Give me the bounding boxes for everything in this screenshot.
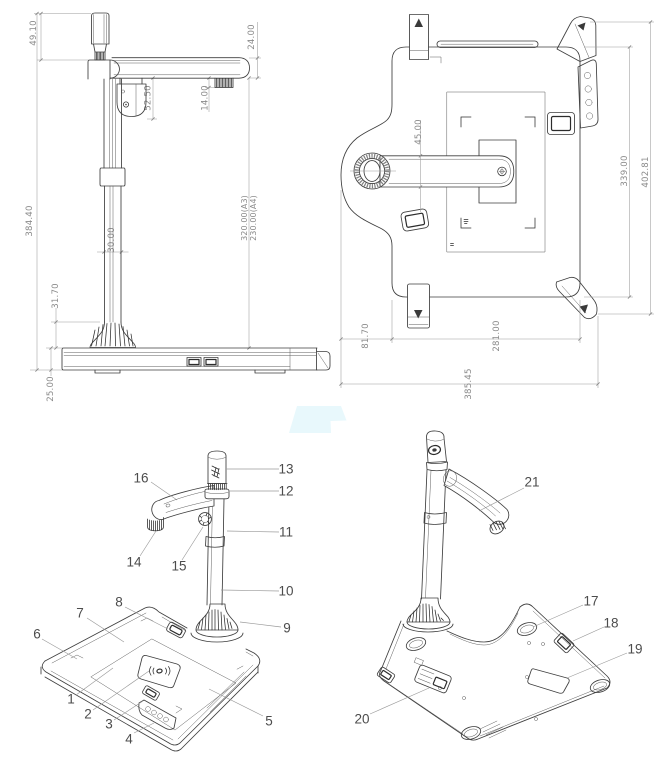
callout-7: 7	[76, 606, 84, 621]
support-pole	[206, 499, 225, 605]
wireless-pad	[138, 655, 180, 687]
dim-work-height-a3: 320.00(A3)	[240, 195, 249, 241]
callout-2: 2	[84, 707, 92, 722]
rear-iso-view: 21 17 18 19 20	[354, 431, 642, 742]
dim-total-height: 384.40	[25, 205, 35, 236]
dim-knob-height: 14.00	[201, 85, 211, 111]
nfc-icon	[150, 667, 171, 676]
folding-arm	[442, 469, 509, 537]
dim-overall-width: 385.45	[464, 368, 474, 399]
dim-head-height: 49.10	[29, 20, 39, 46]
callout-18: 18	[603, 616, 618, 631]
orientation-mark	[578, 23, 586, 31]
dim-work-height-a4: 230.00(A4)	[249, 195, 258, 241]
screw-holes	[438, 641, 544, 720]
dim-pole-width: 30.00	[107, 227, 117, 253]
callout-15: 15	[171, 559, 186, 574]
cove-port	[400, 208, 429, 231]
callout-14: 14	[126, 555, 142, 570]
callout-20: 20	[354, 712, 369, 727]
pole-flare	[403, 598, 453, 632]
pole-flare	[90, 322, 136, 348]
corner-tab-tl	[410, 15, 442, 64]
dim-base-thickness: 25.00	[46, 376, 56, 402]
callout-10: 10	[278, 584, 293, 599]
top-slot	[437, 41, 538, 47]
callout-8: 8	[115, 595, 123, 610]
corner-foot-tr	[557, 17, 596, 62]
callout-9: 9	[283, 621, 291, 636]
callout-11: 11	[279, 525, 293, 540]
callout-5: 5	[265, 714, 273, 729]
top-view: 45.00 339.00 402.81 81.70 281.00 385.45	[339, 15, 654, 400]
camera-head	[427, 431, 448, 471]
base-side	[62, 348, 330, 373]
callout-4: 4	[125, 732, 133, 747]
control-pod	[139, 700, 176, 730]
callout-17: 17	[583, 594, 598, 609]
corner-tab-bl	[408, 284, 430, 328]
callout-12: 12	[278, 484, 293, 499]
callout-6: 6	[33, 627, 41, 642]
side-connector	[548, 113, 575, 135]
dim-base-depth: 339.00	[620, 155, 630, 186]
rubber-feet	[405, 620, 612, 742]
horizontal-arm	[110, 58, 250, 78]
cable-compartment	[414, 664, 452, 693]
arm-top	[380, 156, 514, 187]
callout-19: 19	[627, 642, 642, 657]
aux-camera-head	[92, 13, 110, 60]
thumbscrew	[199, 513, 212, 526]
dim-base-width: 281.00	[492, 320, 502, 351]
dim-overall-depth: 402.81	[641, 156, 651, 187]
dim-camera-drop: 52.50	[144, 85, 154, 111]
camera-head	[208, 451, 228, 490]
front-iso-view: 16 13 12 11 14 15 10 9 8 7 6 1 2 3 4 5	[33, 451, 293, 751]
callout-3: 3	[105, 717, 113, 732]
callout-1: 1	[67, 692, 75, 707]
rear-slot	[166, 621, 187, 638]
base-feet	[95, 370, 285, 373]
dim-arm-thickness: 24.00	[247, 24, 257, 50]
dim-lobe-offset: 81.70	[361, 323, 371, 349]
usb-ports	[187, 358, 218, 367]
base-underside	[377, 604, 612, 742]
callout-16: 16	[133, 471, 148, 486]
watermark-highlight	[289, 406, 347, 433]
side-view: 49.10 384.40 24.00 52.50 14.00 30.00 320…	[25, 12, 330, 402]
front-slot	[142, 685, 160, 701]
drawing-canvas: 49.10 384.40 24.00 52.50 14.00 30.00 320…	[0, 0, 667, 760]
label-plate	[528, 669, 570, 694]
head-collar	[205, 489, 229, 499]
folding-arm	[148, 486, 215, 531]
dim-arm-width: 45.00	[414, 119, 424, 145]
support-pole	[100, 79, 125, 322]
pole-flare	[191, 604, 243, 642]
orientation-mark	[580, 305, 589, 314]
technical-drawing: 49.10 384.40 24.00 52.50 14.00 30.00 320…	[0, 0, 667, 760]
arm-lock-knob	[215, 78, 233, 87]
hole-bracket	[578, 60, 598, 128]
callout-21: 21	[524, 475, 539, 490]
support-pole	[422, 470, 447, 599]
callout-13: 13	[278, 462, 293, 477]
corner-foot-br	[556, 277, 597, 318]
latch	[414, 658, 423, 666]
dim-flare-height: 31.70	[51, 283, 61, 309]
